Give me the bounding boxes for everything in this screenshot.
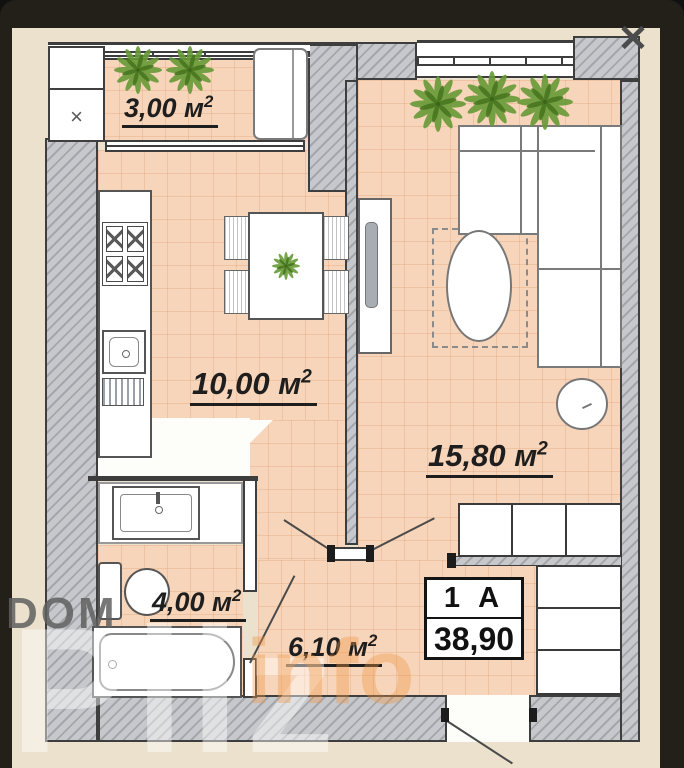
balcony-door-band xyxy=(105,140,305,152)
wall-right xyxy=(620,80,640,742)
unit-name: 1 А xyxy=(427,580,521,619)
wall-bathroom-top xyxy=(88,476,258,481)
wall-cap xyxy=(447,553,456,568)
sofa-body xyxy=(537,125,622,368)
tv-stand xyxy=(358,198,392,354)
room-label-living: 15,80 м2 xyxy=(426,438,553,478)
wall-bottom-left xyxy=(98,695,447,742)
plant-icon xyxy=(464,71,520,127)
plant-icon xyxy=(517,74,573,130)
door-hinge-mark xyxy=(529,708,537,722)
wardrobe-living xyxy=(458,503,622,557)
plant-icon xyxy=(114,46,162,94)
room-label-hallway: 6,10 м2 xyxy=(286,631,382,667)
toilet-tank xyxy=(98,562,122,620)
plant-icon xyxy=(410,76,466,132)
coffee-table-oval xyxy=(446,230,512,342)
chair-icon xyxy=(224,270,250,314)
room-label-bathroom: 4,00 м2 xyxy=(150,586,246,622)
wall-left xyxy=(45,138,98,742)
sofa-backrest-line xyxy=(600,127,602,366)
stove-icon xyxy=(102,222,148,286)
kitchen-sink-icon xyxy=(102,330,146,374)
wall-bathroom-partition-lower xyxy=(243,658,257,698)
washbasin-icon xyxy=(112,486,200,540)
side-table-round xyxy=(556,378,608,430)
door-hinge-mark xyxy=(441,708,449,722)
chair-icon xyxy=(323,216,349,260)
entrance-opening xyxy=(447,695,529,742)
balcony-cabinet: × xyxy=(48,46,105,142)
image-viewer-overlay: × xyxy=(0,0,684,768)
kitchen-appliance-icon xyxy=(102,378,144,406)
bathtub-icon xyxy=(92,626,242,698)
room-label-kitchen: 10,00 м2 xyxy=(190,366,317,406)
close-button[interactable]: ✕ xyxy=(612,18,654,60)
wardrobe-hallway xyxy=(536,565,622,695)
sofa-cushion-line xyxy=(539,268,620,270)
wall-cap xyxy=(327,545,335,562)
plant-icon xyxy=(166,46,214,94)
sofa-backrest-line xyxy=(460,150,595,152)
wall-cap xyxy=(366,545,374,562)
chair-icon xyxy=(224,216,250,260)
unit-info-box: 1 А 38,90 xyxy=(424,577,524,660)
sofa-cushion-line xyxy=(520,127,522,233)
room-label-balcony: 3,00 м2 xyxy=(122,92,218,128)
chair-icon xyxy=(323,270,349,314)
cabinet-mark: × xyxy=(50,104,103,130)
wall-bathroom-partition-upper xyxy=(243,476,257,592)
unit-total-area: 38,90 xyxy=(427,619,521,659)
balcony-bench xyxy=(253,48,308,140)
plant-icon xyxy=(272,252,300,280)
floor-corner-cut xyxy=(245,420,273,448)
